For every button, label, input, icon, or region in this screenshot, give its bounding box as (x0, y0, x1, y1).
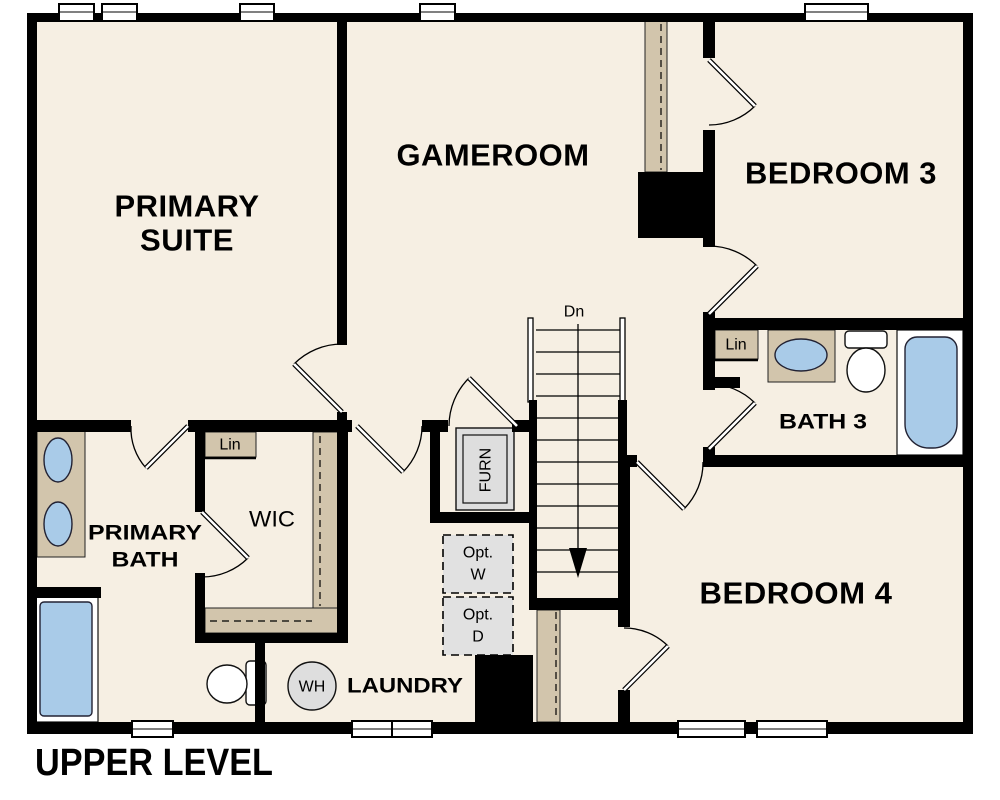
linen-wic-label: Lin (219, 437, 240, 454)
chimney-mass (638, 172, 710, 238)
sink-icon (44, 438, 72, 482)
window (420, 4, 455, 21)
wic-label: WIC (249, 507, 295, 532)
primary-bath-label-line1: PRIMARY (88, 522, 202, 545)
window (240, 4, 274, 21)
toilet-icon (845, 331, 887, 392)
wic-shelf-right (313, 432, 338, 633)
opt-dryer-label-line1: Opt. (463, 607, 493, 624)
floor-plan-page: PRIMARY SUITE GAMEROOM BEDROOM 3 BEDROOM… (0, 0, 1000, 800)
sink-icon (44, 502, 72, 546)
window (678, 721, 745, 737)
window (59, 4, 94, 21)
window (757, 721, 827, 737)
furnace-label: FURN (478, 448, 495, 492)
water-heater-label: WH (299, 679, 326, 696)
primary-suite-label-line2: SUITE (140, 223, 234, 258)
window (805, 4, 868, 21)
opt-washer-label-line1: Opt. (463, 545, 493, 562)
linen-bath3-label: Lin (725, 337, 746, 354)
window (352, 721, 392, 737)
bathtub-icon (905, 337, 957, 448)
primary-bath-label-line2: BATH (112, 549, 179, 572)
window (102, 4, 137, 21)
stair-rail (528, 318, 533, 402)
window (132, 721, 173, 737)
shower-icon (40, 602, 92, 716)
bath3-label: BATH 3 (779, 411, 867, 434)
gameroom-label: GAMEROOM (397, 138, 590, 173)
plan-title: UPPER LEVEL (35, 742, 273, 784)
opt-washer-label-line2: W (470, 567, 486, 584)
laundry-wall-mass (475, 655, 533, 722)
bedroom3-label: BEDROOM 3 (745, 156, 937, 191)
primary-suite-label-line1: PRIMARY (115, 189, 260, 224)
stair-rail (620, 318, 625, 402)
laundry-label: LAUNDRY (347, 675, 463, 698)
window (392, 721, 432, 737)
stairs-dn-label: Dn (564, 304, 584, 321)
opt-dryer-label-line2: D (472, 629, 484, 646)
sink-icon (775, 339, 827, 371)
bedroom4-label: BEDROOM 4 (700, 576, 893, 611)
chimney-chase (645, 21, 667, 172)
floor-plan-drawing: PRIMARY SUITE GAMEROOM BEDROOM 3 BEDROOM… (0, 0, 1000, 800)
